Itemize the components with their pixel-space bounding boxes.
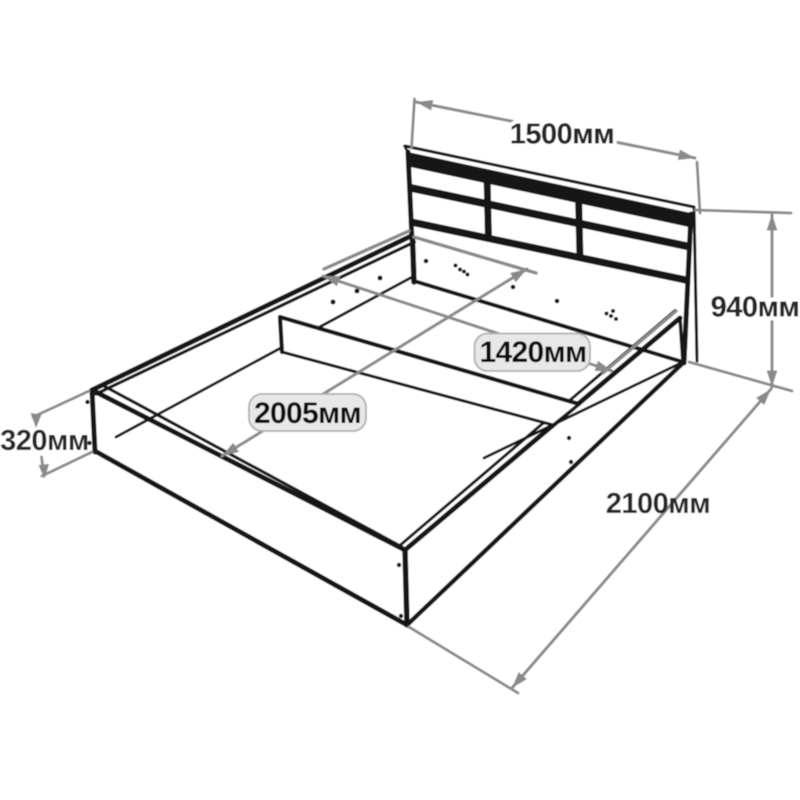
svg-text:940мм: 940мм [711,292,800,324]
svg-text:1420мм: 1420мм [480,336,587,369]
svg-text:1500мм: 1500мм [510,119,614,151]
svg-text:320мм: 320мм [0,425,89,457]
svg-text:2005мм: 2005мм [254,397,361,430]
svg-text:2100мм: 2100мм [606,488,710,520]
